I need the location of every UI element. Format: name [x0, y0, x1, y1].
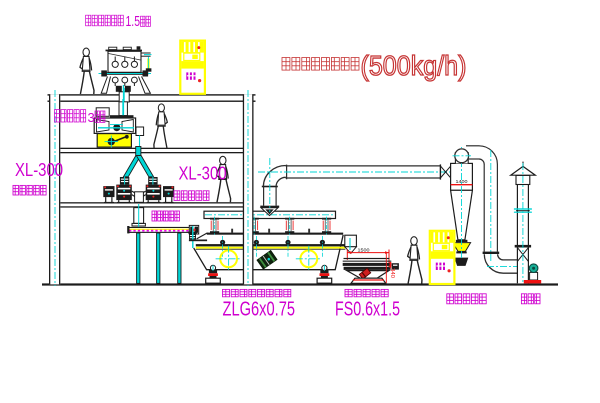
svg-text:XL-300: XL-300: [15, 159, 63, 180]
svg-text:3: 3: [88, 110, 95, 125]
svg-text:340: 340: [389, 268, 395, 278]
svg-text:XL-300: XL-300: [179, 163, 227, 184]
svg-text:1.5: 1.5: [126, 14, 141, 30]
svg-text:1500: 1500: [358, 248, 371, 253]
svg-text:(500kg/h): (500kg/h): [361, 50, 467, 81]
svg-text:ZLG6x0.75: ZLG6x0.75: [223, 299, 296, 321]
svg-text:FS0.6x1.5: FS0.6x1.5: [335, 299, 400, 321]
